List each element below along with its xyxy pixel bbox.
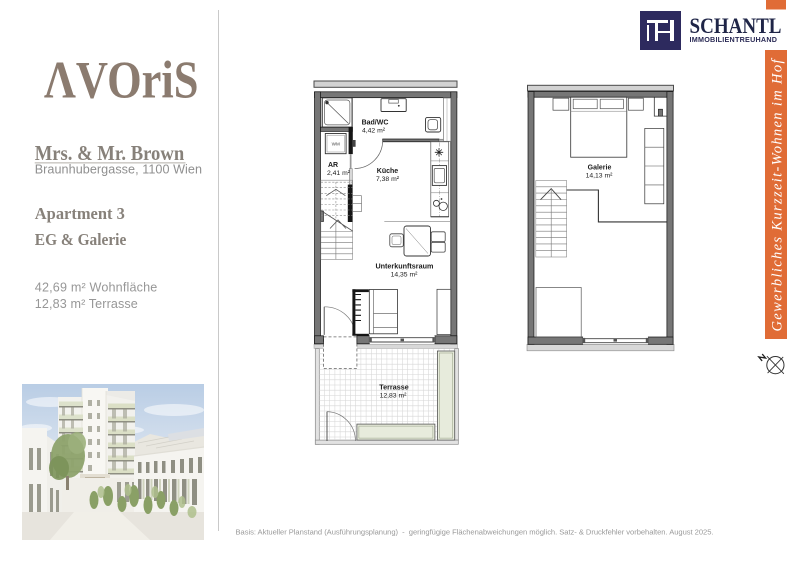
- svg-text:Basis: Aktueller Planstand (Au: Basis: Aktueller Planstand (Ausführungsp…: [236, 528, 714, 537]
- svg-text:12,83 m²: 12,83 m²: [380, 393, 408, 400]
- svg-text:Terrasse: Terrasse: [379, 382, 408, 391]
- svg-text:EG & Galerie: EG & Galerie: [35, 230, 127, 249]
- svg-text:42,69 m² Wohnfläche: 42,69 m² Wohnfläche: [35, 281, 158, 295]
- svg-text:Mrs. & Mr. Brown: Mrs. & Mr. Brown: [35, 141, 185, 165]
- svg-text:IMMOBILIENTREUHAND: IMMOBILIENTREUHAND: [690, 35, 778, 44]
- svg-text:AR: AR: [328, 162, 338, 169]
- svg-text:Küche: Küche: [377, 168, 399, 175]
- svg-text:2,41 m²: 2,41 m²: [327, 170, 351, 177]
- svg-text:Gewerbliches Kurzzeit-Wohnen i: Gewerbliches Kurzzeit-Wohnen im Hof: [770, 58, 786, 332]
- svg-text:Apartment 3: Apartment 3: [35, 204, 125, 223]
- svg-text:14,13 m²: 14,13 m²: [586, 172, 614, 179]
- svg-text:Braunhubergasse, 1100 Wien: Braunhubergasse, 1100 Wien: [35, 163, 202, 177]
- svg-text:Unterkunftsraum: Unterkunftsraum: [375, 261, 433, 270]
- svg-text:4,42 m²: 4,42 m²: [362, 127, 386, 134]
- svg-text:14,35 m²: 14,35 m²: [391, 271, 419, 278]
- svg-text:ΛVOriS: ΛVOriS: [44, 52, 199, 110]
- svg-text:7,38 m²: 7,38 m²: [376, 176, 400, 183]
- svg-text:Galerie: Galerie: [588, 165, 612, 172]
- svg-text:12,83 m² Terrasse: 12,83 m² Terrasse: [35, 297, 138, 311]
- svg-text:WM: WM: [332, 142, 340, 147]
- svg-text:Bad/WC: Bad/WC: [362, 119, 389, 126]
